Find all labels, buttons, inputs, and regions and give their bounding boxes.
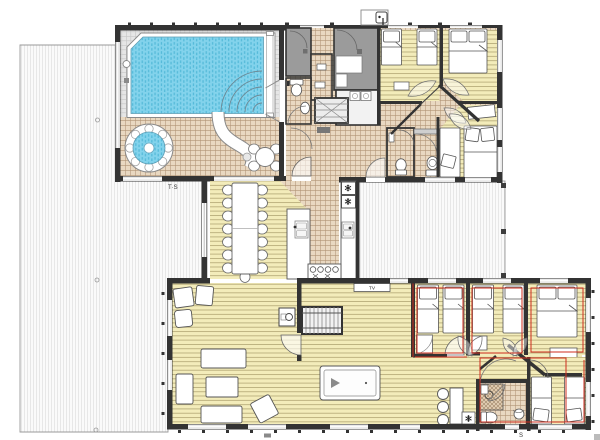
svg-text:T·S: T·S (168, 185, 178, 191)
svg-text:TV: TV (369, 286, 376, 292)
svg-text:S: S (519, 433, 523, 439)
